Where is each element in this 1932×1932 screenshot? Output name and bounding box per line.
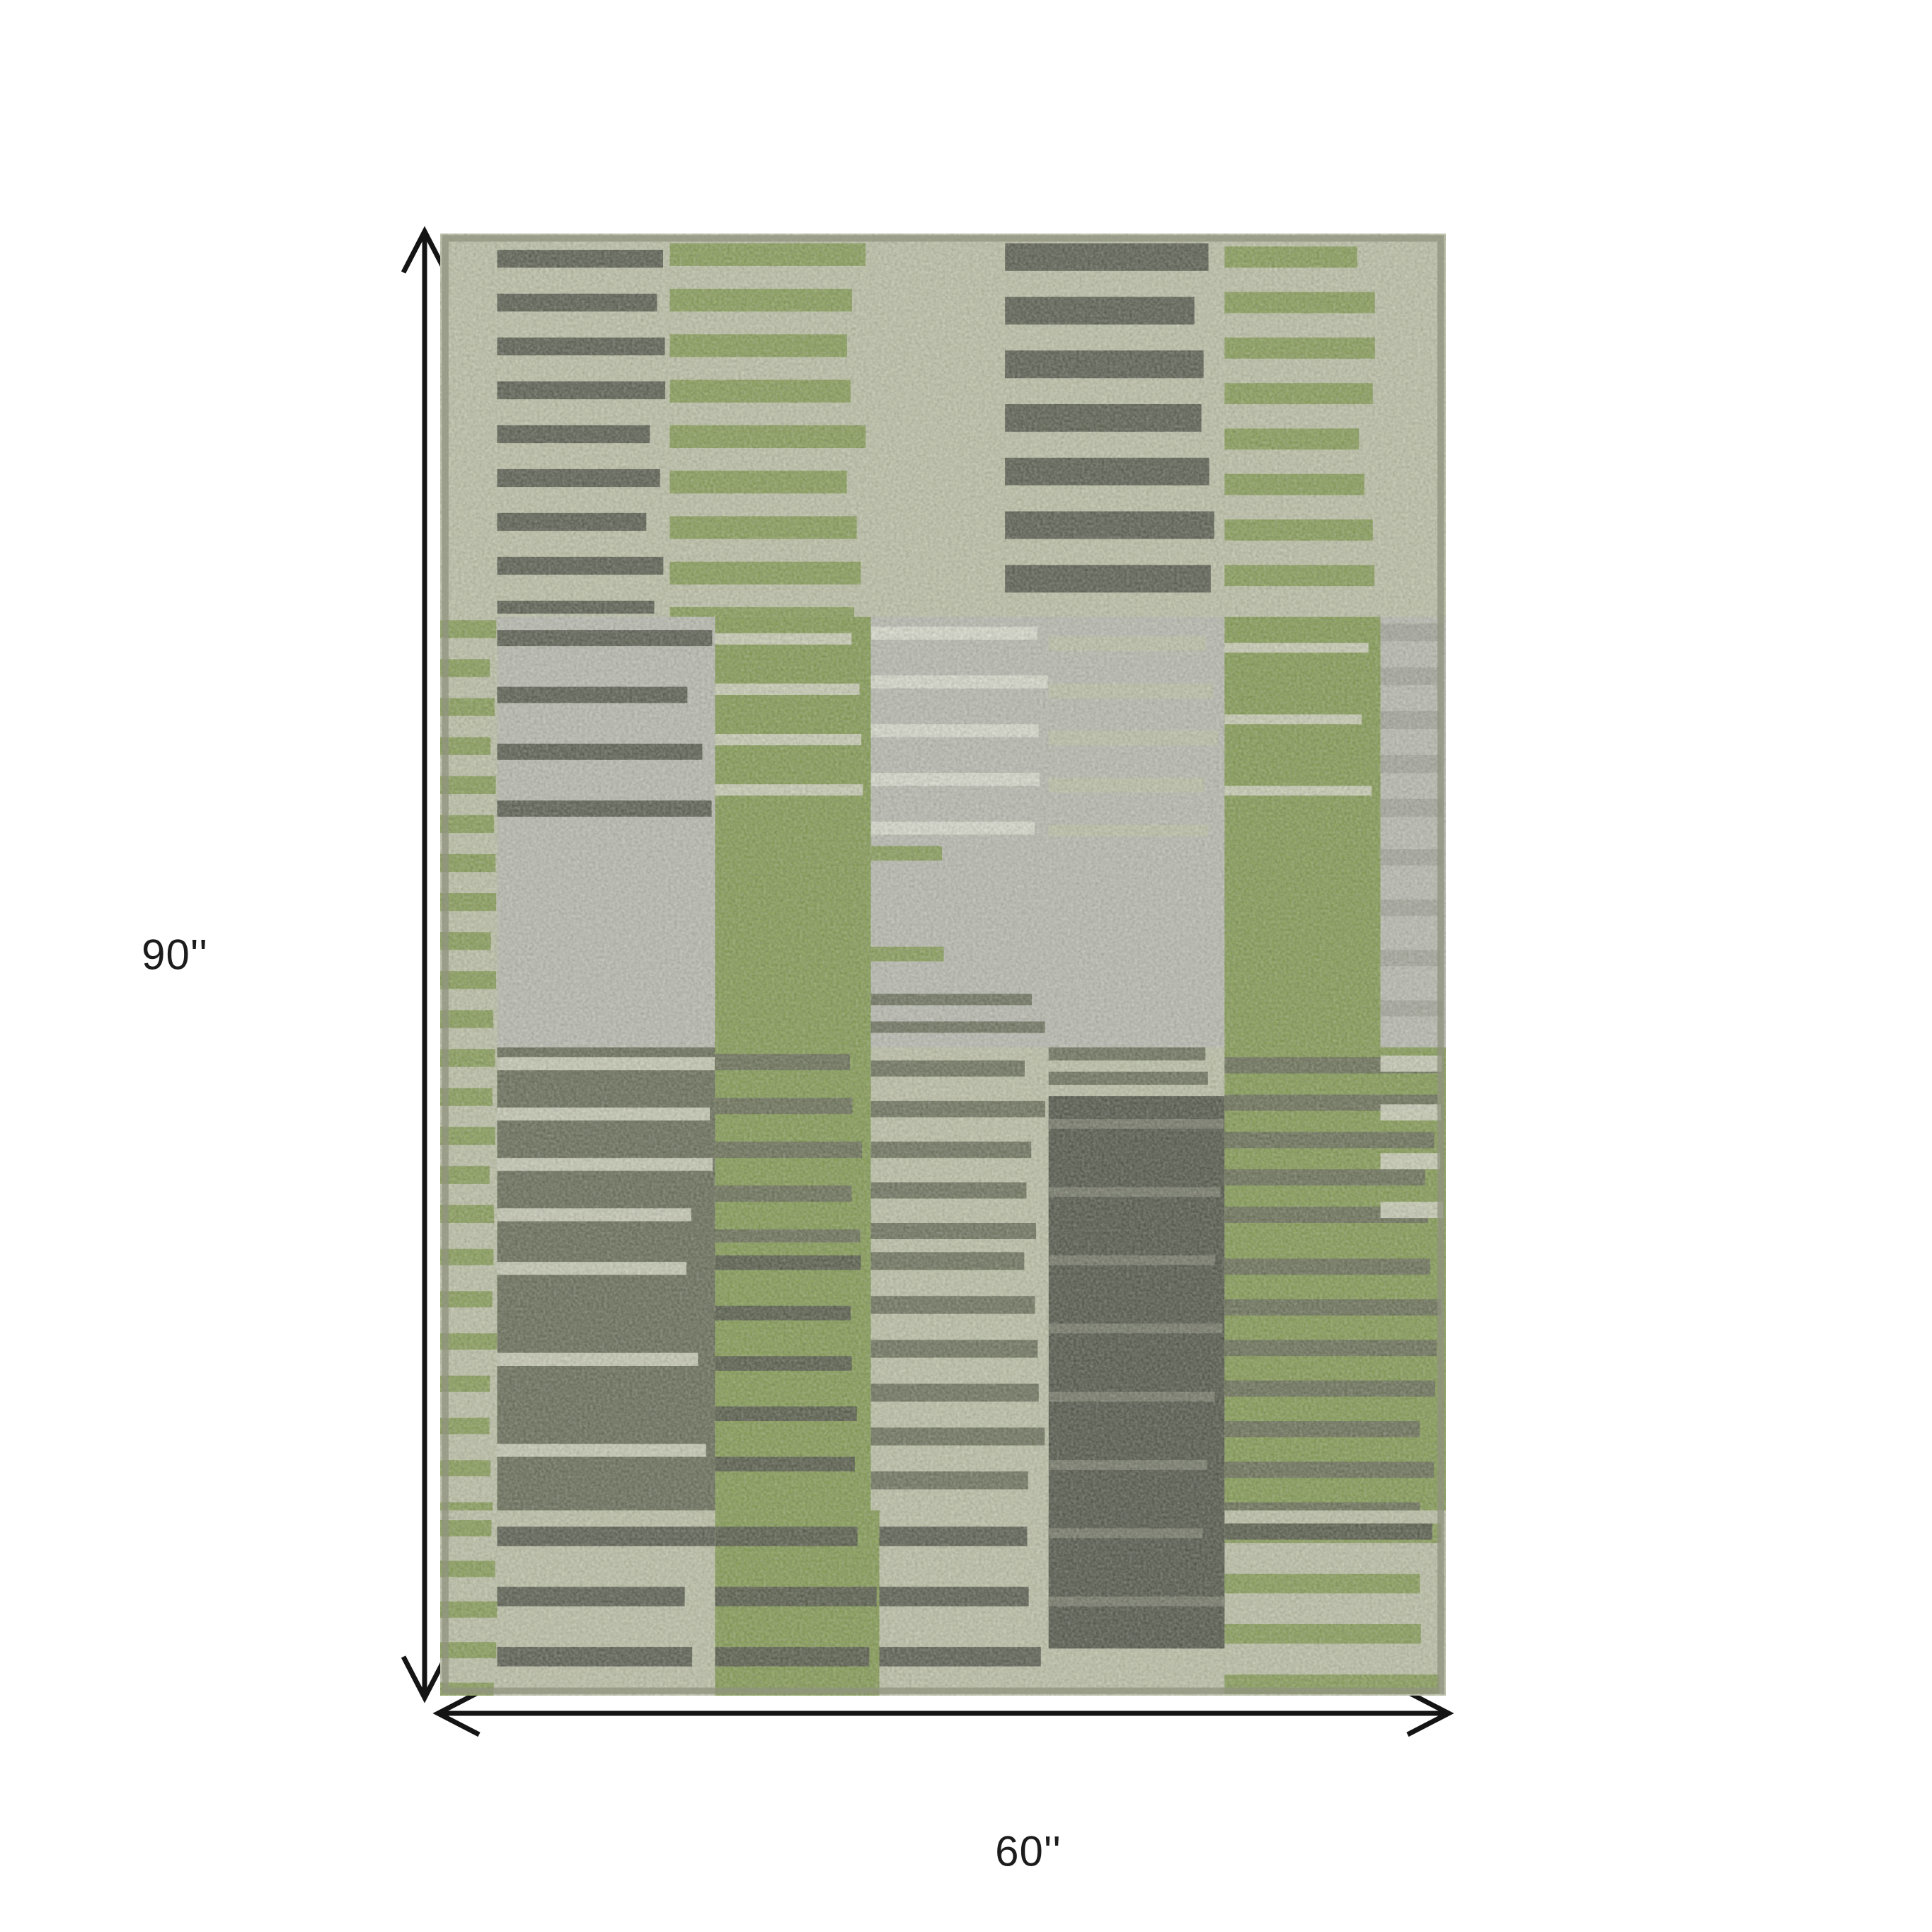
arrowhead-down-icon <box>403 1657 446 1698</box>
height-dimension-label: 90'' <box>142 931 208 979</box>
arrowhead-right-icon <box>1408 1692 1449 1735</box>
rug-image <box>440 234 1446 1696</box>
arrowhead-left-icon <box>438 1692 479 1735</box>
width-dimension-label: 60'' <box>995 1827 1062 1876</box>
arrowhead-up-icon <box>403 231 446 272</box>
diagram-canvas: 90'' 60'' <box>0 0 1932 1932</box>
rug-texture-light <box>440 234 1446 1696</box>
width-arrow <box>438 1692 1449 1735</box>
rug-pattern <box>440 234 1446 1696</box>
height-arrow <box>403 231 446 1698</box>
